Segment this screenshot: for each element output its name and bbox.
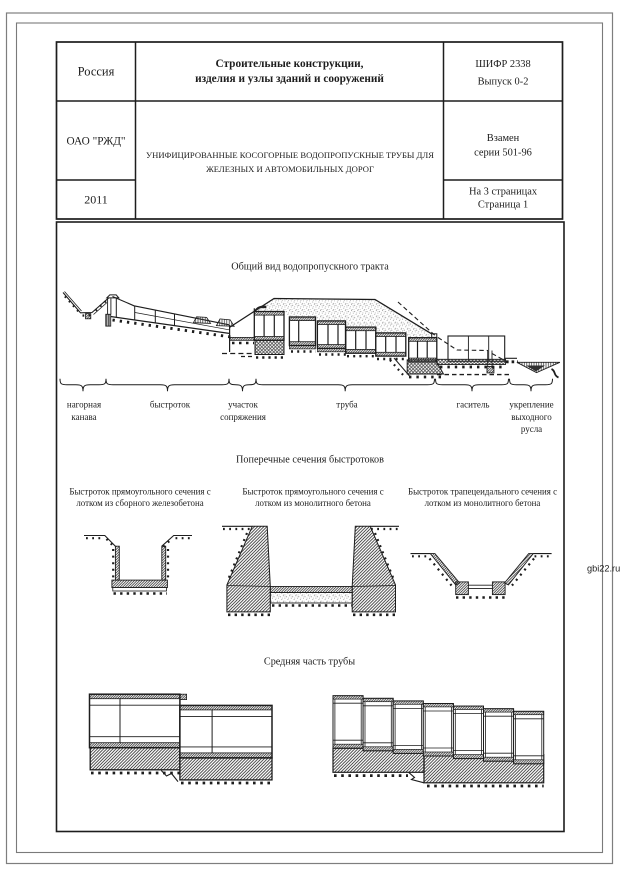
svg-text:Быстроток трапецеидального сеч: Быстроток трапецеидального сечения с <box>408 487 557 497</box>
svg-text:лотком из монолитного бетона: лотком из монолитного бетона <box>255 498 371 508</box>
svg-text:На 3 страницах: На 3 страницах <box>469 187 538 198</box>
svg-text:русла: русла <box>521 424 542 434</box>
svg-text:канава: канава <box>71 412 96 422</box>
svg-text:Россия: Россия <box>78 65 115 79</box>
svg-text:Быстроток прямоугольного сечен: Быстроток прямоугольного сечения с <box>242 487 383 497</box>
svg-text:Поперечные сечения быстротоков: Поперечные сечения быстротоков <box>236 455 384 466</box>
svg-text:ОАО "РЖД": ОАО "РЖД" <box>66 136 125 148</box>
svg-text:Страница 1: Страница 1 <box>478 200 528 211</box>
svg-text:Средняя часть трубы: Средняя часть трубы <box>264 657 355 668</box>
svg-text:Взамен: Взамен <box>487 133 520 144</box>
svg-text:ЖЕЛЕЗНЫХ И АВТОМОБИЛЬНЫХ ДОРОГ: ЖЕЛЕЗНЫХ И АВТОМОБИЛЬНЫХ ДОРОГ <box>206 164 374 174</box>
svg-text:серии 501-96: серии 501-96 <box>474 148 532 159</box>
svg-text:сопряжения: сопряжения <box>220 412 266 422</box>
svg-text:изделия и узлы зданий и сооруж: изделия и узлы зданий и сооружений <box>195 73 384 85</box>
svg-text:Быстроток прямоугольного сечен: Быстроток прямоугольного сечения с <box>69 487 210 497</box>
svg-text:труба: труба <box>336 400 357 410</box>
svg-text:gbi22.ru: gbi22.ru <box>587 564 620 574</box>
svg-text:2011: 2011 <box>84 193 108 207</box>
svg-text:лотком из монолитного бетона: лотком из монолитного бетона <box>425 498 541 508</box>
svg-text:выходного: выходного <box>511 412 552 422</box>
svg-text:лотком из сборного железобетон: лотком из сборного железобетона <box>76 498 203 508</box>
svg-text:ШИФР 2338: ШИФР 2338 <box>475 59 530 70</box>
svg-text:Общий вид водопропускного трак: Общий вид водопропускного тракта <box>231 262 389 273</box>
svg-text:укрепление: укрепление <box>509 400 553 410</box>
svg-text:Выпуск 0-2: Выпуск 0-2 <box>478 77 529 88</box>
svg-text:участок: участок <box>228 400 258 410</box>
svg-text:гаситель: гаситель <box>456 400 489 410</box>
svg-text:нагорная: нагорная <box>67 400 101 410</box>
svg-text:Строительные конструкции,: Строительные конструкции, <box>215 58 363 70</box>
svg-text:УНИФИЦИРОВАННЫЕ КОСОГОРНЫЕ ВОД: УНИФИЦИРОВАННЫЕ КОСОГОРНЫЕ ВОДОПРОПУСКНЫ… <box>146 150 434 160</box>
svg-text:быстроток: быстроток <box>150 400 191 410</box>
